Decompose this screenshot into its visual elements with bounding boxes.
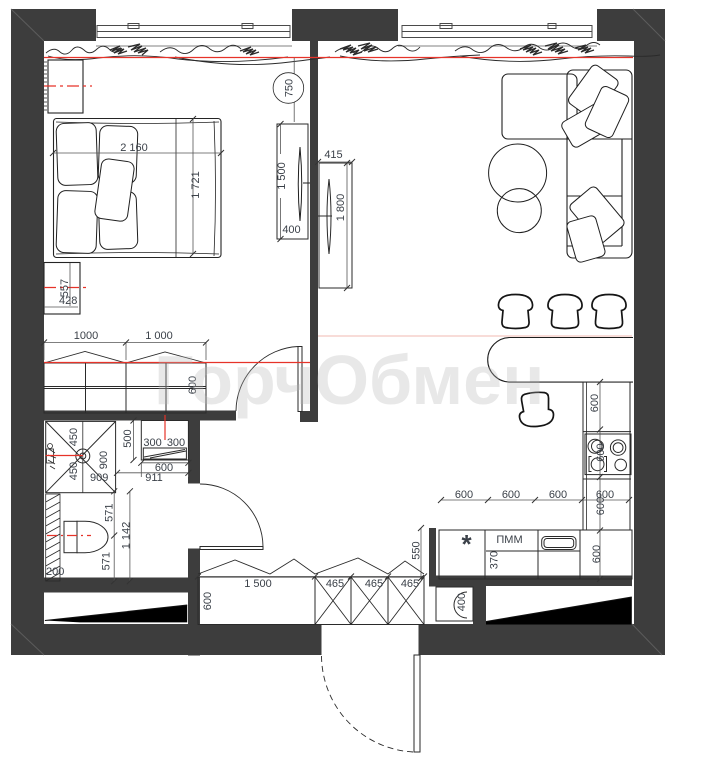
svg-text:1 800: 1 800 xyxy=(335,194,347,222)
svg-text:300: 300 xyxy=(143,437,161,449)
svg-text:600: 600 xyxy=(455,489,473,501)
svg-text:1 721: 1 721 xyxy=(190,171,202,199)
svg-text:300: 300 xyxy=(167,437,185,449)
svg-text:465: 465 xyxy=(401,578,419,590)
svg-text:465: 465 xyxy=(326,578,344,590)
svg-text:ГорчОбмен: ГорчОбмен xyxy=(154,341,544,419)
svg-text:400: 400 xyxy=(282,224,300,236)
svg-text:911: 911 xyxy=(145,472,163,484)
svg-text:2 160: 2 160 xyxy=(120,142,148,154)
svg-text:1 142: 1 142 xyxy=(121,522,133,550)
svg-text:600: 600 xyxy=(595,443,607,461)
svg-text:ПММ: ПММ xyxy=(496,534,522,546)
svg-text:1 500: 1 500 xyxy=(244,578,272,590)
svg-text:1000: 1000 xyxy=(74,330,98,342)
svg-text:571: 571 xyxy=(104,504,116,522)
svg-text:900: 900 xyxy=(98,451,110,469)
svg-text:600: 600 xyxy=(202,592,214,610)
svg-text:600: 600 xyxy=(502,489,520,501)
svg-text:465: 465 xyxy=(365,578,383,590)
svg-text:400: 400 xyxy=(456,593,468,611)
svg-text:571: 571 xyxy=(101,552,113,570)
svg-text:200: 200 xyxy=(46,566,64,578)
svg-text:415: 415 xyxy=(324,149,342,161)
svg-text:909: 909 xyxy=(90,472,108,484)
svg-text:600: 600 xyxy=(595,497,607,515)
svg-text:600: 600 xyxy=(591,545,603,563)
svg-text:428: 428 xyxy=(59,295,77,307)
svg-text:600: 600 xyxy=(589,394,601,412)
svg-text:550: 550 xyxy=(411,541,423,559)
svg-text:600: 600 xyxy=(549,489,567,501)
svg-text:500: 500 xyxy=(122,429,134,447)
svg-text:370: 370 xyxy=(489,551,501,569)
svg-text:450: 450 xyxy=(68,428,80,446)
svg-text:1 500: 1 500 xyxy=(276,162,288,190)
svg-text:450: 450 xyxy=(68,462,80,480)
svg-text:750: 750 xyxy=(283,79,295,97)
svg-text:*: * xyxy=(461,529,472,559)
